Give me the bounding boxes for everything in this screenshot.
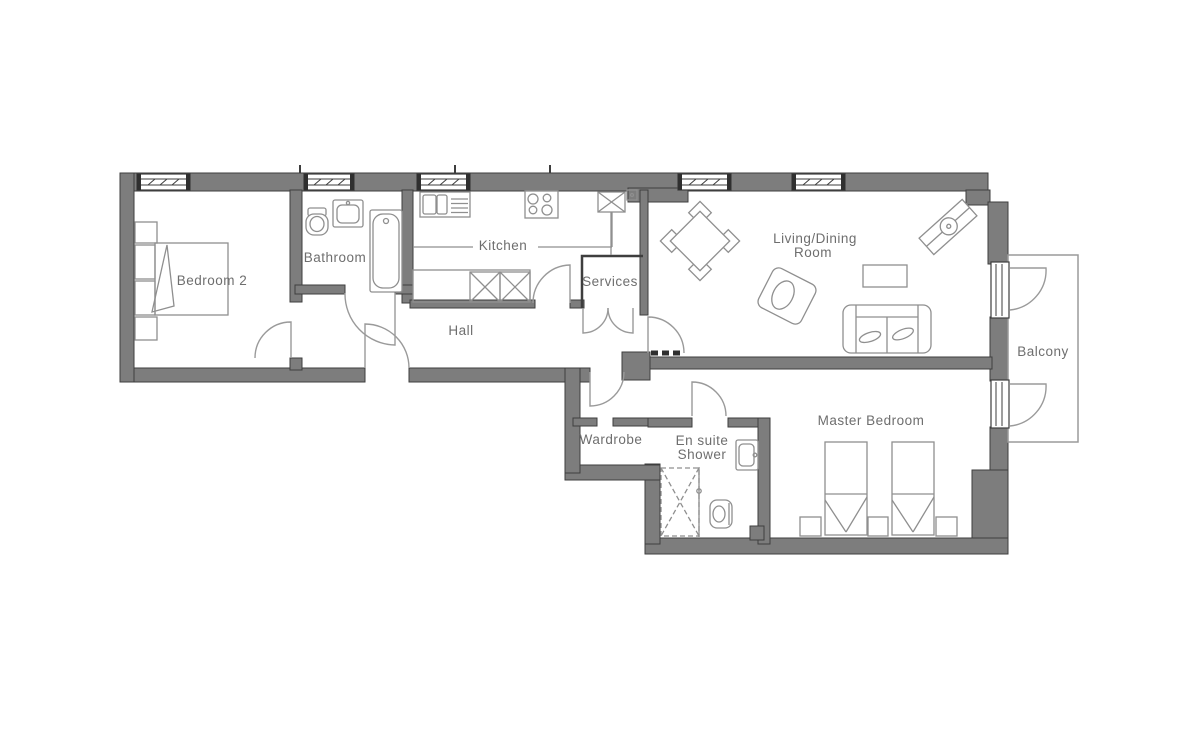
- room-label-kitchen: Kitchen: [479, 238, 528, 253]
- room-label-living-line2: Room: [794, 245, 832, 260]
- shower-tray-icon: [661, 467, 701, 537]
- kitchen-door: [533, 265, 570, 303]
- room-label-master: Master Bedroom: [818, 413, 925, 428]
- room-label-ensuite-line1: En suite: [676, 433, 729, 448]
- sofa-icon: [843, 305, 931, 353]
- walls: [120, 165, 1008, 554]
- toilet-icon: [710, 500, 732, 528]
- ensuite-door: [692, 382, 726, 416]
- room-label-bedroom2: Bedroom 2: [177, 273, 248, 288]
- bedside-table-icon: [868, 517, 888, 536]
- headboard-unit-icon: [135, 245, 155, 279]
- window-bathroom: [304, 174, 354, 190]
- toilet-icon: [306, 208, 328, 235]
- bedside-table-icon: [135, 317, 157, 340]
- armchair-icon: [756, 266, 819, 327]
- living-room-door: [648, 317, 684, 353]
- basin-icon: [333, 200, 363, 227]
- window-bedroom2: [137, 174, 190, 190]
- bathroom-fixtures: [306, 200, 402, 292]
- window-kitchen: [417, 174, 470, 190]
- single-bed-icon: [892, 442, 934, 535]
- room-label-wardrobe: Wardrobe: [580, 432, 643, 447]
- appliance-icon: [598, 190, 637, 255]
- basin-icon: [736, 440, 758, 470]
- room-label-bathroom: Bathroom: [304, 250, 367, 265]
- bathtub-icon: [370, 210, 402, 292]
- single-bed-icon: [825, 442, 867, 535]
- dining-table-chairs-icon: [660, 201, 739, 280]
- bedside-table-icon: [135, 222, 157, 243]
- bedside-table-icon: [800, 517, 821, 536]
- window-living-left: [678, 174, 731, 190]
- room-label-services: Services: [582, 274, 638, 289]
- master-lobby-door: [590, 372, 624, 406]
- living-furniture: [660, 199, 977, 353]
- room-label-ensuite-line2: Shower: [678, 447, 727, 462]
- room-label-living-line1: Living/Dining: [773, 231, 857, 246]
- room-label-hall: Hall: [448, 323, 473, 338]
- entrance-door: [365, 324, 409, 368]
- floor-plan: Bedroom 2 Bathroom Kitchen Services Livi…: [0, 0, 1200, 733]
- floor-plan-drawing: Bedroom 2 Bathroom Kitchen Services Livi…: [0, 0, 1200, 733]
- bedside-table-icon: [936, 517, 957, 536]
- bedroom2-door: [255, 322, 291, 358]
- room-label-balcony: Balcony: [1017, 344, 1069, 359]
- master-furniture: [800, 442, 957, 536]
- bathroom-door: [345, 293, 395, 345]
- coffee-table-icon: [863, 265, 907, 287]
- services-doors: [583, 308, 633, 333]
- hob-icon: [525, 191, 558, 218]
- kitchen-sink-icon: [420, 192, 470, 217]
- window-living-right: [792, 174, 845, 190]
- counter-units-icon: [413, 270, 530, 302]
- tv-unit-icon: [919, 199, 977, 254]
